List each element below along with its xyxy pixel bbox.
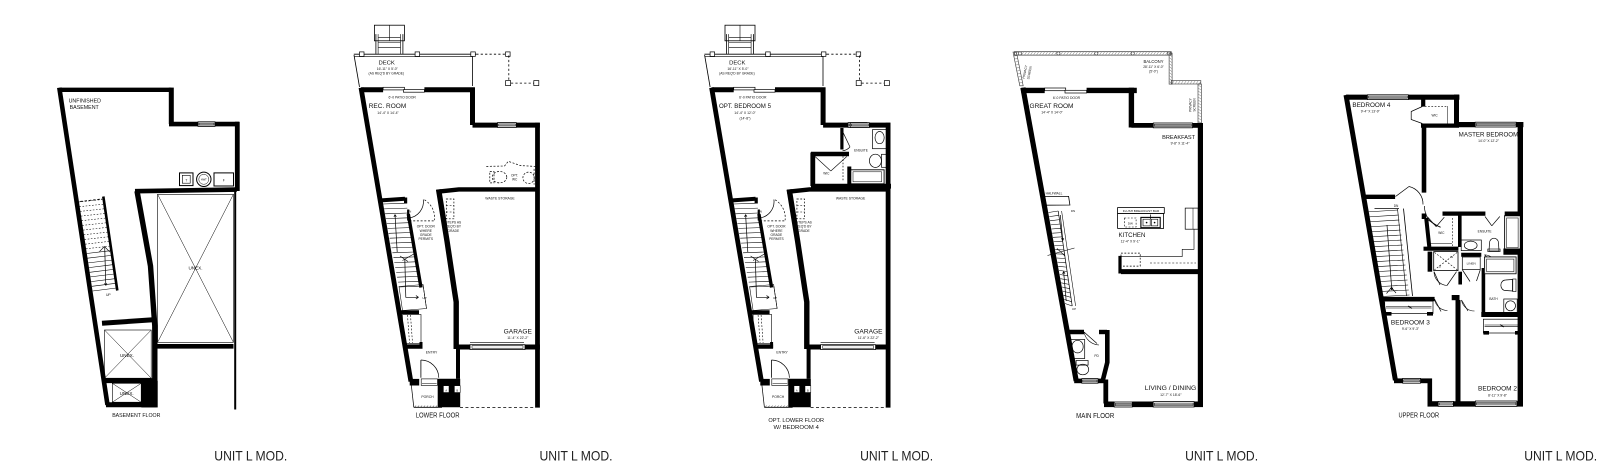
svg-text:BEDROOM 3: BEDROOM 3: [1391, 320, 1431, 327]
svg-text:11'-4" X 9'-1": 11'-4" X 9'-1": [1121, 240, 1141, 244]
svg-text:A: A: [445, 388, 447, 392]
svg-text:DN: DN: [758, 209, 762, 213]
svg-text:14'-4" X 14'-0": 14'-4" X 14'-0": [1041, 111, 1063, 115]
svg-text:WIC: WIC: [823, 171, 830, 175]
svg-text:B: B: [807, 388, 809, 392]
svg-text:12'-7" X 18'-6": 12'-7" X 18'-6": [1160, 393, 1182, 397]
svg-text:BALCONY: BALCONY: [1143, 59, 1163, 64]
svg-text:WASTE STORAGE: WASTE STORAGE: [485, 196, 515, 200]
svg-text:GREAT ROOM: GREAT ROOM: [1030, 103, 1074, 110]
svg-text:14'-4" X 14'-4": 14'-4" X 14'-4": [377, 111, 399, 115]
svg-text:6'-0 PATIO DOOR: 6'-0 PATIO DOOR: [739, 96, 767, 100]
svg-text:WC: WC: [512, 178, 518, 182]
svg-text:GARAGE: GARAGE: [854, 328, 882, 335]
svg-text:PD: PD: [1094, 354, 1099, 358]
svg-text:6'-0 PATIO DOOR: 6'-0 PATIO DOOR: [1053, 96, 1081, 100]
svg-text:MAIN FLOOR: MAIN FLOOR: [1076, 413, 1114, 420]
svg-text:UNEX.: UNEX.: [188, 266, 202, 271]
svg-text:14'-4" X 12'-0": 14'-4" X 12'-0": [734, 111, 756, 115]
svg-text:(14'-8"): (14'-8"): [740, 116, 751, 120]
svg-text:MASTER BEDROOM: MASTER BEDROOM: [1459, 132, 1519, 139]
svg-text:(5'-0"): (5'-0"): [1149, 70, 1158, 74]
svg-text:HALFWALL: HALFWALL: [1046, 192, 1063, 196]
svg-text:WIC: WIC: [1431, 113, 1438, 117]
svg-text:PORCH: PORCH: [421, 395, 434, 399]
svg-text:PORCH: PORCH: [772, 395, 785, 399]
svg-text:UNFINISHED: UNFINISHED: [69, 98, 102, 104]
svg-text:PERMITS: PERMITS: [769, 237, 784, 241]
svg-text:14'-0" X 12'-2": 14'-0" X 12'-2": [1478, 139, 1500, 143]
svg-text:GRADE: GRADE: [798, 229, 811, 233]
svg-text:DN: DN: [1071, 209, 1075, 213]
svg-text:REC. ROOM: REC. ROOM: [369, 103, 407, 110]
svg-text:BASEMENT: BASEMENT: [70, 105, 100, 111]
svg-text:DECK: DECK: [729, 60, 745, 66]
svg-text:(AS REQ'D BY GRADE): (AS REQ'D BY GRADE): [369, 71, 405, 75]
svg-text:UNEX.: UNEX.: [120, 391, 134, 396]
svg-text:11'-4" X 22'-2": 11'-4" X 22'-2": [507, 336, 529, 340]
svg-text:ENTRY: ENTRY: [776, 351, 788, 355]
svg-text:DN: DN: [1394, 204, 1399, 208]
svg-text:WIC: WIC: [1438, 231, 1445, 235]
svg-text:UNEX.: UNEX.: [120, 353, 134, 358]
svg-text:UNIT L MOD.: UNIT L MOD.: [540, 449, 613, 464]
svg-text:OPT. BEDROOM 5: OPT. BEDROOM 5: [719, 103, 771, 110]
svg-text:UNIT L MOD.: UNIT L MOD.: [214, 449, 287, 464]
svg-text:DW: DW: [1128, 222, 1133, 226]
svg-text:DECK: DECK: [379, 60, 395, 66]
svg-text:DN: DN: [407, 209, 411, 213]
svg-text:BATH: BATH: [1489, 297, 1498, 301]
svg-text:B: B: [456, 388, 458, 392]
svg-text:UPPER FLOOR: UPPER FLOOR: [1399, 413, 1440, 420]
svg-text:ENSUITE: ENSUITE: [1478, 229, 1492, 233]
svg-text:UNIT L MOD.: UNIT L MOD.: [860, 449, 933, 464]
svg-text:GARAGE: GARAGE: [504, 328, 532, 335]
svg-text:HWT: HWT: [201, 178, 207, 182]
svg-text:8'-11" X 9'-8": 8'-11" X 9'-8": [1488, 393, 1508, 397]
svg-text:UNIT L MOD.: UNIT L MOD.: [1524, 449, 1597, 464]
svg-text:SCREEN: SCREEN: [1193, 98, 1197, 112]
svg-text:BEDROOM 2: BEDROOM 2: [1478, 386, 1518, 393]
svg-text:PERMITS: PERMITS: [418, 237, 433, 241]
svg-text:28'-11" X 6'-0": 28'-11" X 6'-0": [1143, 65, 1164, 69]
svg-text:GRADE: GRADE: [447, 229, 460, 233]
svg-text:16'-11" X 5'-0": 16'-11" X 5'-0": [727, 67, 749, 71]
svg-text:T: T: [185, 178, 187, 182]
svg-text:UP: UP: [106, 293, 111, 297]
svg-text:W/ BEDROOM 4: W/ BEDROOM 4: [774, 425, 820, 431]
svg-text:WASTE STORAGE: WASTE STORAGE: [836, 196, 866, 200]
svg-text:W: W: [1450, 255, 1453, 259]
svg-text:11'-6" X 22'-2": 11'-6" X 22'-2": [858, 336, 880, 340]
svg-text:OPT. LOWER FLOOR: OPT. LOWER FLOOR: [768, 418, 824, 424]
svg-text:A: A: [796, 388, 798, 392]
svg-text:ENSUITE: ENSUITE: [854, 149, 868, 153]
svg-text:9'-6" X 9'-3": 9'-6" X 9'-3": [1402, 327, 1420, 331]
svg-text:FLUSH BREAKFAST BAR: FLUSH BREAKFAST BAR: [1123, 209, 1160, 213]
svg-text:UP: UP: [1072, 307, 1076, 311]
svg-text:ENTRY: ENTRY: [426, 351, 438, 355]
svg-text:6'-0 PATIO DOOR: 6'-0 PATIO DOOR: [389, 96, 417, 100]
svg-text:LINEN: LINEN: [1467, 262, 1476, 266]
svg-text:KITCHEN: KITCHEN: [1119, 232, 1146, 239]
svg-text:BASEMENT FLOOR: BASEMENT FLOOR: [112, 413, 160, 419]
svg-text:BEDROOM 4: BEDROOM 4: [1352, 102, 1391, 109]
svg-text:(AS REQ'D BY GRADE): (AS REQ'D BY GRADE): [719, 71, 755, 75]
svg-text:F: F: [223, 178, 225, 182]
svg-text:9'-4" X 13'-9": 9'-4" X 13'-9": [1361, 110, 1381, 114]
svg-text:BREAKFAST: BREAKFAST: [1162, 135, 1196, 141]
svg-text:16'-11" X 5'-0": 16'-11" X 5'-0": [377, 67, 399, 71]
svg-text:LOWER FLOOR: LOWER FLOOR: [416, 412, 460, 419]
svg-text:LIVING / DINING: LIVING / DINING: [1145, 385, 1197, 392]
svg-text:9'-8" X 11'-4": 9'-8" X 11'-4": [1171, 141, 1191, 145]
svg-text:UNIT L MOD.: UNIT L MOD.: [1185, 449, 1258, 464]
